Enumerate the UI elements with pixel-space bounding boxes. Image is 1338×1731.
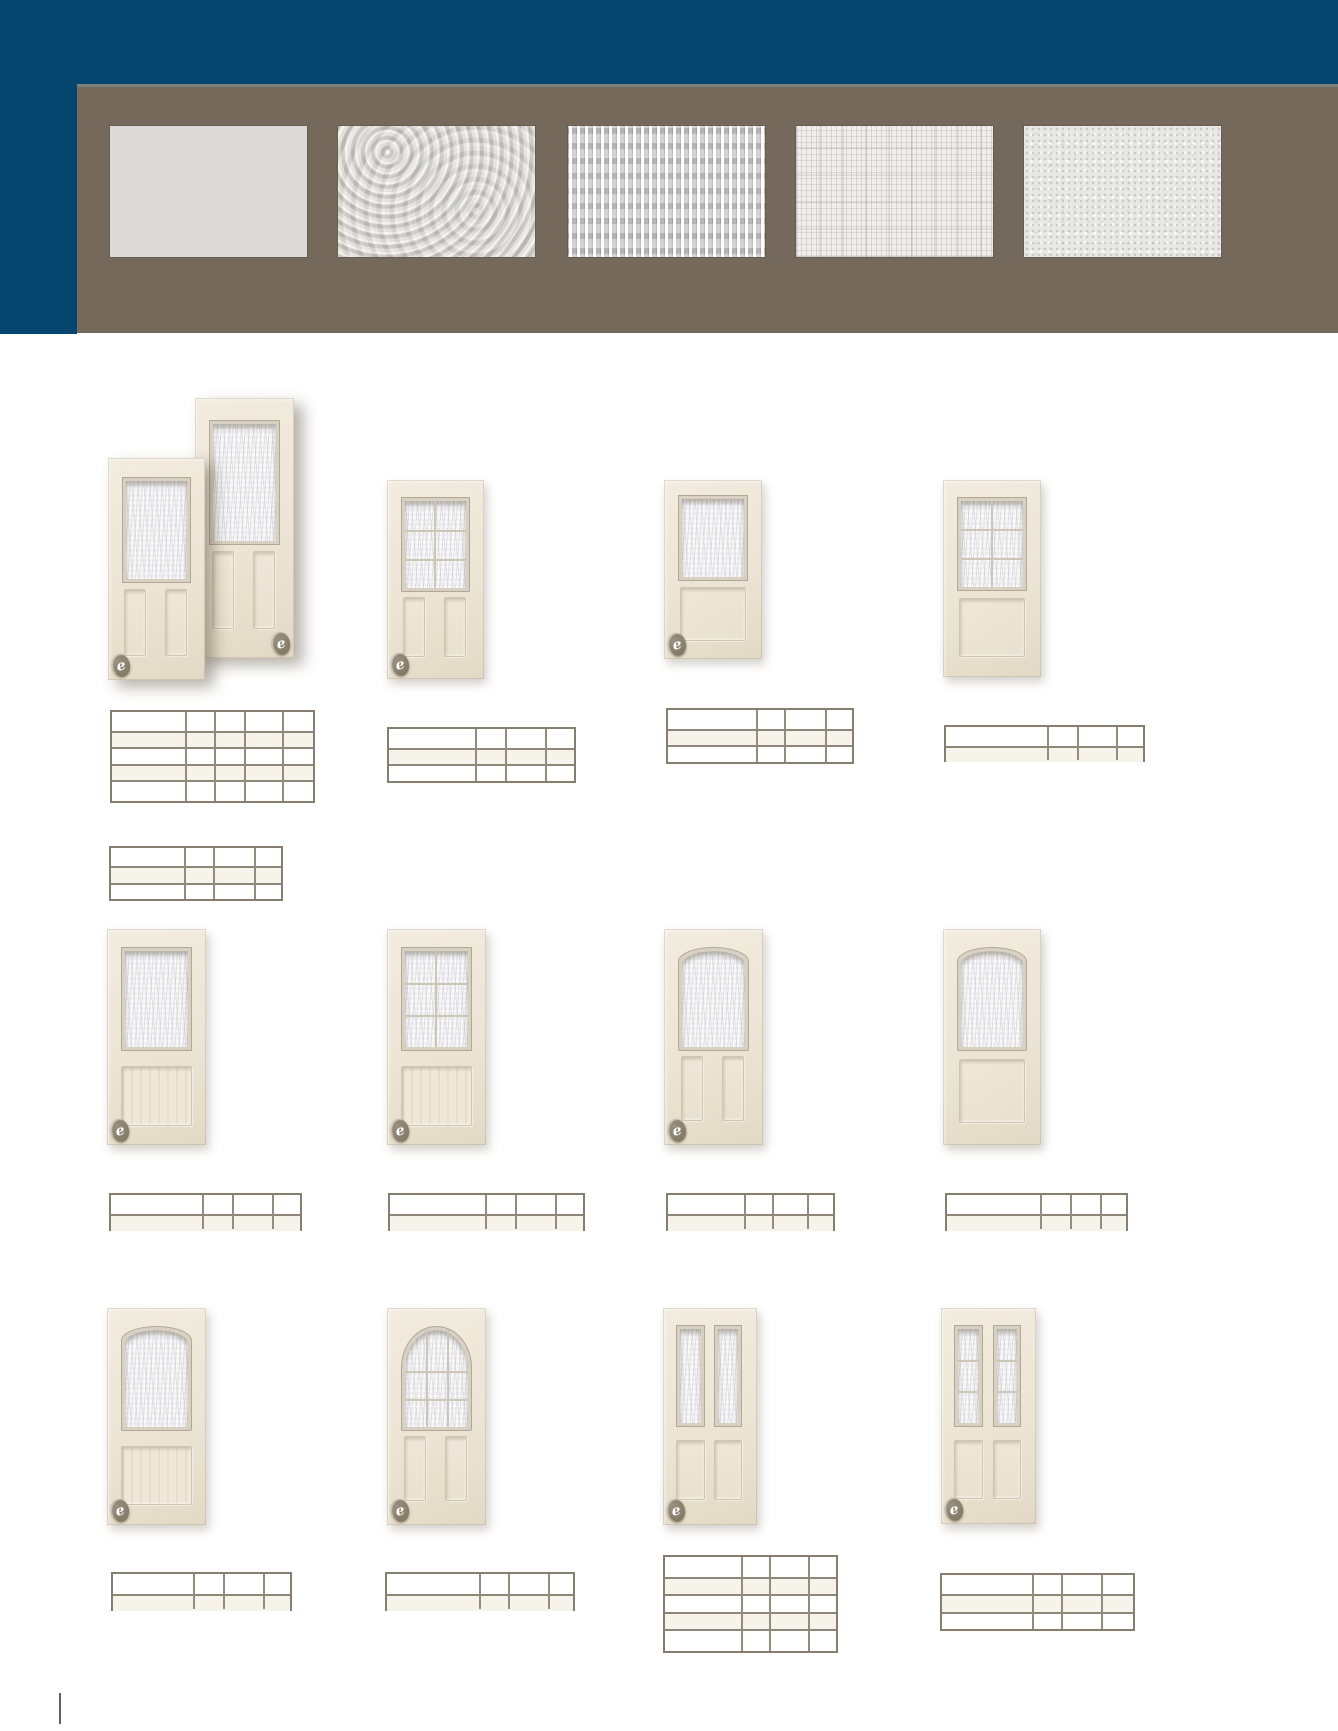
spec-table-r1c1-b: [109, 846, 283, 901]
door-lite-frame: [401, 947, 472, 1051]
manufacturer-e-logo: e: [666, 1117, 688, 1143]
spec-table-column-line: [1101, 1575, 1103, 1629]
glass-swatch-clear-image: [110, 126, 307, 257]
door-lite-frame: [957, 947, 1028, 1051]
spec-table-column-line: [508, 1574, 510, 1609]
spec-table-row: [665, 1612, 836, 1630]
manufacturer-e-logo: e: [270, 630, 292, 656]
spec-table-row: [665, 1557, 836, 1577]
spec-table-row: [111, 848, 281, 866]
door-raised-panel: [253, 551, 275, 629]
door-glass: [213, 424, 276, 541]
spec-table-column-line: [475, 729, 477, 781]
door-beadboard-panel: [121, 1446, 192, 1506]
spec-table-column-line: [744, 1195, 746, 1229]
door-raised-panel: [403, 597, 425, 657]
glass-grille: [447, 1330, 449, 1426]
spec-table-row: [111, 883, 281, 899]
glass-grille: [405, 530, 467, 532]
spec-table-column-line: [202, 1195, 204, 1229]
spec-table-column-line: [213, 848, 215, 899]
spec-table-row: [942, 1575, 1133, 1594]
door-raised-panel: [212, 551, 234, 629]
door-image-r3c1: e: [107, 1308, 206, 1525]
door-glass: [961, 951, 1024, 1047]
spec-table-row: [665, 1594, 836, 1612]
door-image-r2c4: [943, 929, 1041, 1145]
door-glass: [682, 951, 745, 1047]
spec-table-column-line: [772, 1195, 774, 1229]
spec-table-column-line: [505, 729, 507, 781]
spec-table-row: [942, 1594, 1133, 1611]
door-raised-panel: [681, 1056, 703, 1121]
spec-table-r1c1-a: [110, 710, 315, 803]
spec-table-column-line: [769, 1557, 771, 1651]
glass-grille: [961, 558, 1024, 560]
glass-grille: [405, 559, 467, 561]
door-raised-panel: [714, 1440, 742, 1500]
page-edge-mark: [59, 1693, 61, 1724]
spec-table-column-line: [214, 712, 216, 801]
spec-table-column-line: [485, 1195, 487, 1229]
manufacturer-e-logo: e: [665, 1497, 687, 1523]
spec-table-column-line: [756, 710, 758, 762]
glass-grille: [405, 1015, 468, 1017]
door-raised-panel: [404, 1436, 426, 1501]
door-glass: [997, 1329, 1018, 1423]
door-image-r1c4: [943, 480, 1041, 677]
spec-table-r2c4: [945, 1193, 1128, 1231]
door-glass: [125, 1330, 188, 1426]
door-glass: [125, 951, 188, 1047]
manufacturer-e-logo: e: [110, 652, 132, 678]
glass-grille: [405, 1399, 468, 1401]
spec-table-column-line: [184, 848, 186, 899]
spec-table-row: [665, 1629, 836, 1647]
door-beadboard-panel: [121, 1066, 192, 1125]
spec-table-column-line: [548, 1574, 550, 1609]
door-image-r1c1-front: e: [108, 458, 205, 680]
spec-table-column-line: [515, 1195, 517, 1229]
door-lite-frame: [121, 1326, 192, 1430]
door-raised-panel: [993, 1440, 1022, 1499]
door-lite-frame: [714, 1325, 742, 1427]
spec-table-column-line: [1070, 1195, 1072, 1229]
manufacturer-e-logo: e: [943, 1496, 965, 1522]
door-lite-frame: [121, 947, 192, 1051]
glass-grille: [961, 529, 1024, 531]
spec-table-column-line: [479, 1574, 481, 1609]
spec-table-r3c4: [940, 1573, 1135, 1631]
spec-table-column-line: [825, 710, 827, 762]
door-image-r3c4: e: [941, 1308, 1036, 1524]
spec-table-r1c2: [387, 727, 576, 783]
spec-table-column-line: [232, 1195, 234, 1229]
spec-table-r2c3: [666, 1193, 835, 1231]
door-raised-panel: [676, 1440, 705, 1500]
door-raised-panel: [954, 1440, 983, 1499]
manufacturer-e-logo: e: [389, 1497, 411, 1523]
door-lite-frame: [993, 1325, 1022, 1427]
glass-grille: [405, 983, 468, 985]
spec-table-column-line: [1040, 1195, 1042, 1229]
spec-table-r3c1: [111, 1572, 292, 1611]
door-image-r3c3: e: [663, 1308, 757, 1525]
spec-table-column-line: [1032, 1575, 1034, 1629]
spec-table-r3c2: [385, 1572, 575, 1611]
spec-table-column-line: [808, 1557, 810, 1651]
glass-grille: [958, 1391, 979, 1393]
spec-table-column-line: [282, 712, 284, 801]
door-glass: [405, 1330, 468, 1426]
spec-table-column-line: [193, 1574, 195, 1609]
door-raised-panel: [444, 597, 466, 657]
spec-table-column-line: [807, 1195, 809, 1229]
door-raised-panel: [445, 1436, 467, 1501]
door-raised-panel: [680, 587, 747, 641]
spec-table-column-line: [784, 710, 786, 762]
spec-table-column-line: [263, 1574, 265, 1609]
door-glass: [405, 501, 467, 589]
door-lite-frame: [957, 497, 1028, 592]
glass-swatch-geometric-image: [568, 126, 765, 257]
door-lite-frame: [401, 497, 471, 593]
catalog-page: eeeeeeeeeee: [0, 0, 1338, 1731]
spec-table-r1c3: [666, 708, 854, 764]
spec-table-r3c3: [663, 1555, 838, 1653]
spec-table-column-line: [185, 712, 187, 801]
door-glass: [718, 1329, 738, 1423]
spec-table-column-line: [244, 712, 246, 801]
spec-table-column-line: [741, 1557, 743, 1651]
spec-table-column-line: [1047, 727, 1049, 760]
door-glass: [680, 1329, 701, 1423]
spec-table-column-line: [1116, 727, 1118, 760]
door-image-r2c1: e: [107, 929, 206, 1145]
door-lite-frame: [954, 1325, 983, 1427]
door-lite-frame: [678, 495, 749, 581]
door-beadboard-panel: [401, 1066, 472, 1125]
glass-swatch-linen-image: [796, 126, 993, 257]
header-navy-band: [0, 0, 1338, 84]
spec-table-column-line: [1077, 727, 1079, 760]
door-glass: [961, 501, 1024, 588]
door-glass: [958, 1329, 979, 1423]
spec-table-row: [111, 866, 281, 882]
door-glass: [682, 499, 745, 577]
glass-grille: [405, 1371, 468, 1373]
spec-table-column-line: [545, 729, 547, 781]
door-raised-panel: [165, 589, 187, 656]
door-glass: [126, 481, 188, 580]
glass-swatch-stipple-image: [1024, 126, 1221, 257]
glass-grille: [426, 1330, 428, 1426]
glass-grille: [991, 501, 993, 588]
door-image-r2c2: e: [387, 929, 486, 1145]
door-raised-panel: [959, 598, 1026, 657]
glass-grille: [958, 1360, 979, 1362]
glass-grille: [435, 951, 437, 1047]
spec-table-column-line: [555, 1195, 557, 1229]
door-raised-panel: [722, 1056, 744, 1121]
door-raised-panel: [124, 589, 146, 656]
spec-table-row: [946, 727, 1143, 746]
glass-grille: [997, 1391, 1018, 1393]
door-lite-frame: [122, 477, 192, 584]
spec-table-row: [942, 1612, 1133, 1629]
door-image-r2c3: e: [664, 929, 763, 1145]
door-raised-panel: [959, 1059, 1026, 1124]
glass-grille: [434, 501, 436, 589]
spec-table-r1c4: [944, 725, 1145, 762]
door-lite-frame: [678, 947, 749, 1051]
spec-table-column-line: [1100, 1195, 1102, 1229]
door-image-r3c2: e: [387, 1308, 486, 1525]
spec-table-column-line: [254, 848, 256, 899]
spec-table-row: [665, 1577, 836, 1595]
glass-swatch-panel: [77, 84, 1338, 333]
door-image-r1c2: e: [387, 480, 484, 679]
door-lite-frame: [209, 420, 280, 545]
spec-table-r2c2: [388, 1193, 585, 1231]
spec-table-column-line: [223, 1574, 225, 1609]
glass-swatch-hammered-image: [338, 126, 535, 257]
door-lite-frame: [401, 1326, 472, 1430]
spec-table-row: [946, 746, 1143, 763]
door-image-r1c3: e: [664, 480, 762, 659]
glass-grille: [997, 1360, 1018, 1362]
spec-table-column-line: [1061, 1575, 1063, 1629]
spec-table-column-line: [272, 1195, 274, 1229]
door-lite-frame: [676, 1325, 705, 1427]
spec-table-r2c1: [109, 1193, 302, 1231]
door-image-r1c1-back: e: [195, 398, 294, 658]
door-glass: [405, 951, 468, 1047]
header-navy-left-column: [0, 0, 77, 334]
